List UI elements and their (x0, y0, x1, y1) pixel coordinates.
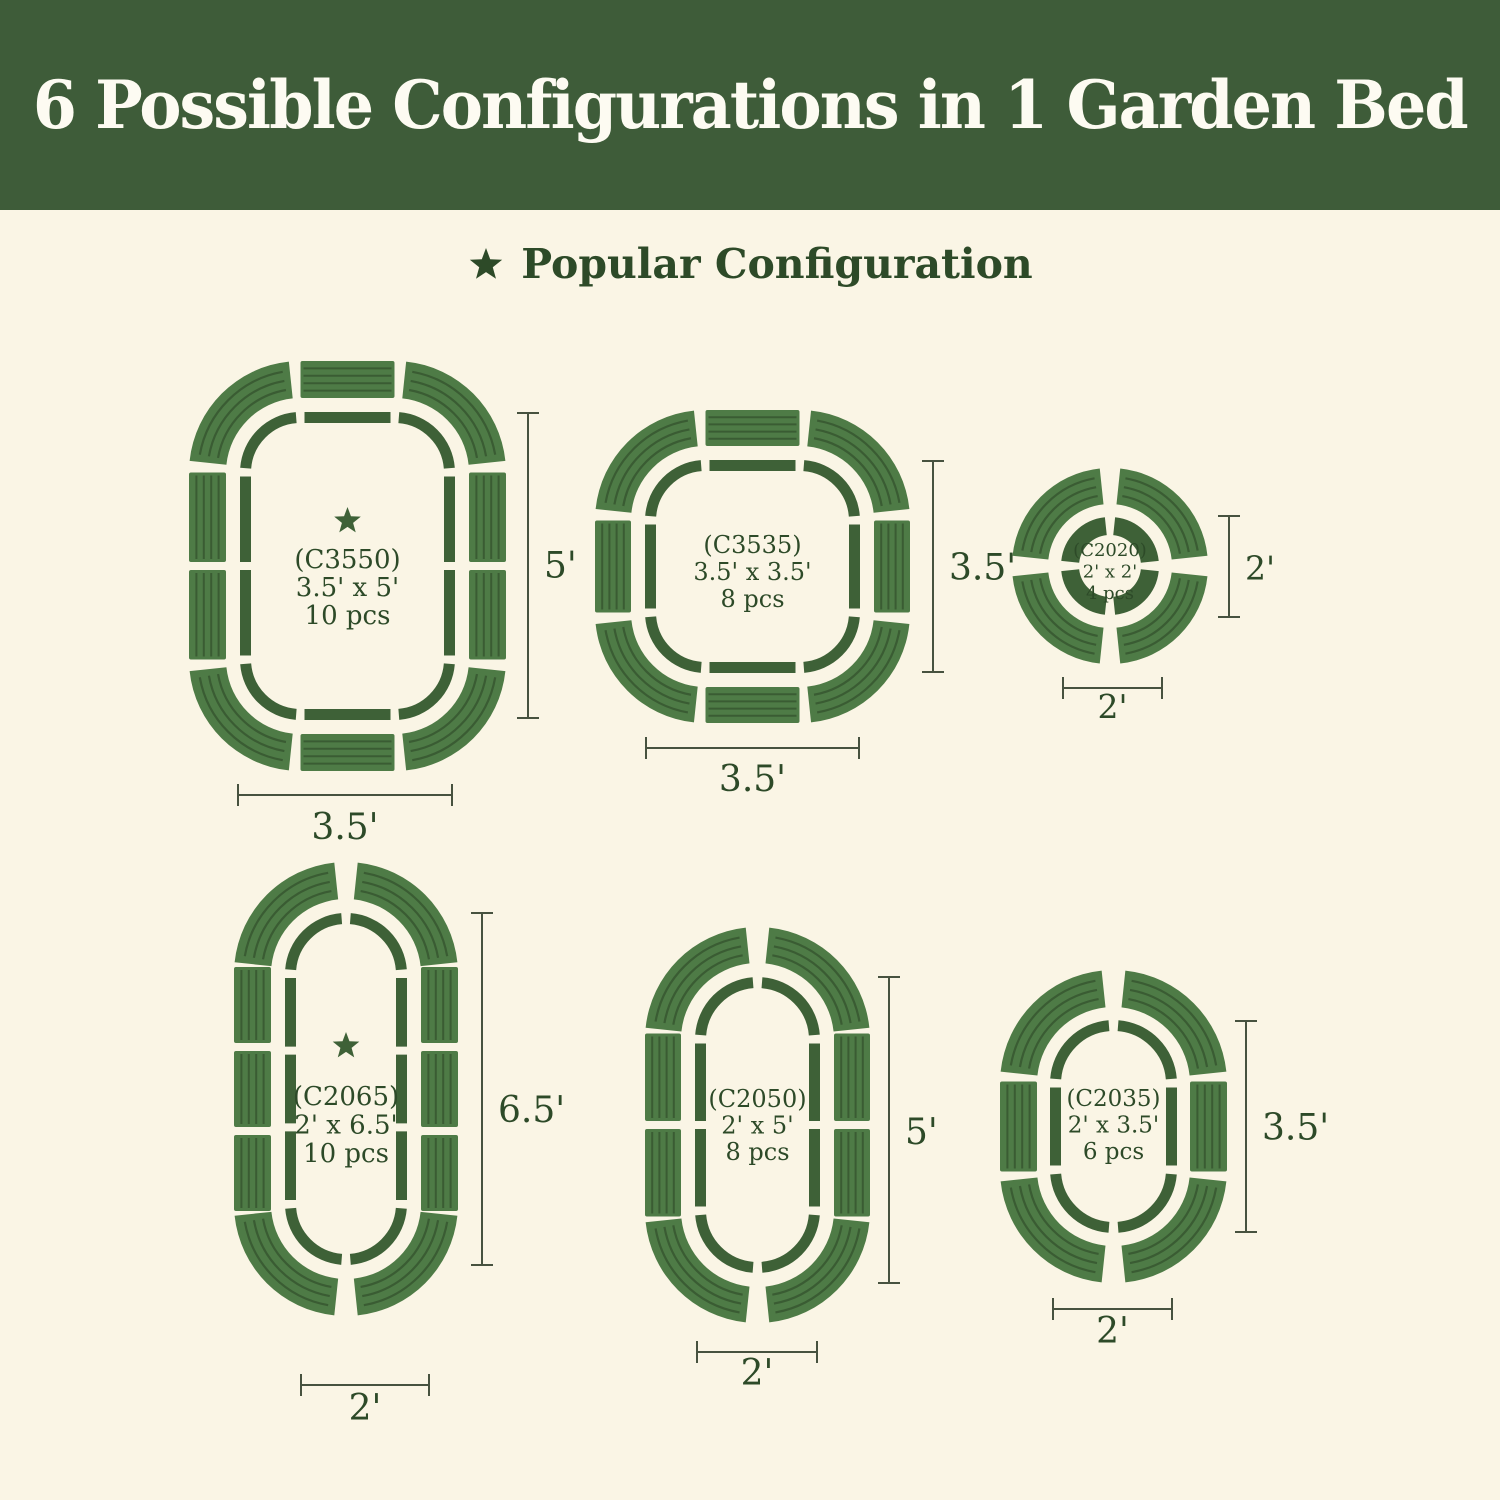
config-pieces: 10 pcs (303, 1139, 389, 1169)
config-pieces: 6 pcs (1083, 1139, 1144, 1165)
straight-panel (706, 687, 800, 723)
straight-panel (301, 734, 395, 771)
bed-track-segment (762, 983, 814, 1035)
bed-track-segment (350, 1208, 401, 1259)
config-size: 3.5' x 5' (296, 573, 399, 603)
config-pieces: 8 pcs (725, 1138, 789, 1166)
straight-panel (301, 361, 395, 398)
config-code: (C2065) (293, 1082, 399, 1112)
bed-track-segment (651, 617, 702, 668)
config-size: 2' x 5' (721, 1112, 794, 1140)
configurations-diagram: (C3550)3.5' x 5'10 pcs5'3.5'(C3535)3.5' … (0, 0, 1500, 1500)
popular-star-icon (334, 507, 361, 532)
legend-label: Popular Configuration (521, 240, 1032, 288)
config-code: (C2035) (1066, 1086, 1160, 1112)
dimension-height-label: 5' (544, 546, 577, 587)
straight-panel (234, 1135, 271, 1211)
bed-track-segment (762, 1215, 814, 1267)
config-c2050: (C2050)2' x 5'8 pcs5'2' (645, 928, 938, 1394)
bed-track-segment (804, 617, 855, 668)
dimension-height-label: 3.5' (1262, 1108, 1329, 1149)
config-c2020: (C2020)2' x 2'4 pcs2'2' (1013, 469, 1276, 726)
straight-panel (645, 1129, 681, 1217)
straight-panel (706, 410, 800, 446)
straight-panel (834, 1129, 870, 1217)
straight-panel (1000, 1082, 1037, 1172)
dimension-height-label: 5' (905, 1112, 938, 1153)
straight-panel (421, 1135, 458, 1211)
config-code: (C3535) (703, 531, 801, 559)
straight-panel (189, 570, 226, 660)
straight-panel (645, 1034, 681, 1122)
straight-panel (469, 473, 506, 563)
straight-panel (421, 967, 458, 1043)
bed-track-segment (291, 919, 342, 970)
dimension-height-label: 2' (1245, 549, 1275, 588)
straight-panel (234, 1051, 271, 1127)
bed-track-segment (399, 418, 450, 469)
bed-track-segment (399, 664, 450, 715)
config-code: (C2020) (1073, 540, 1147, 561)
bed-track-segment (1056, 1026, 1109, 1079)
dimension-width-label: 2' (1097, 687, 1127, 726)
bed-track-segment (291, 1208, 342, 1259)
straight-panel (469, 570, 506, 660)
straight-panel (234, 967, 271, 1043)
config-code: (C3550) (294, 545, 400, 575)
bed-track-segment (246, 664, 297, 715)
dimension-width-label: 2' (741, 1353, 774, 1394)
config-pieces: 8 pcs (720, 585, 784, 613)
straight-panel (874, 521, 910, 613)
straight-panel (834, 1034, 870, 1122)
bed-track-segment (1118, 1026, 1171, 1079)
config-size: 2' x 6.5' (294, 1111, 397, 1141)
straight-panel (421, 1051, 458, 1127)
straight-panel (1190, 1082, 1227, 1172)
config-pieces: 10 pcs (305, 601, 391, 631)
dimension-height-label: 3.5' (949, 548, 1016, 589)
config-size: 3.5' x 3.5' (693, 558, 811, 586)
star-icon-shape (470, 248, 502, 279)
config-pieces: 4 pcs (1086, 583, 1134, 604)
config-c2035: (C2035)2' x 3.5'6 pcs3.5'2' (1000, 971, 1329, 1352)
bed-track-segment (350, 919, 401, 970)
bed-track-segment (1118, 1174, 1171, 1227)
popular-star-icon (333, 1032, 360, 1057)
dimension-width-label: 2' (1096, 1311, 1129, 1352)
bed-track-segment (651, 466, 702, 517)
config-code: (C2050) (708, 1085, 806, 1113)
config-c3535: (C3535)3.5' x 3.5'8 pcs3.5'3.5' (595, 410, 1016, 800)
config-size: 2' x 2' (1083, 562, 1137, 583)
dimension-width-label: 2' (349, 1388, 382, 1429)
dimension-width-label: 3.5' (719, 759, 786, 800)
straight-panel (189, 473, 226, 563)
config-c3550: (C3550)3.5' x 5'10 pcs5'3.5' (189, 361, 577, 848)
straight-panel (595, 521, 631, 613)
bed-track-segment (246, 418, 297, 469)
infographic-canvas: 6 Possible Configurations in 1 Garden Be… (0, 0, 1500, 1500)
bed-track-segment (701, 983, 753, 1035)
bed-track-segment (1056, 1174, 1109, 1227)
popular-configuration-legend: Popular Configuration (0, 234, 1500, 294)
dimension-height-label: 6.5' (498, 1090, 565, 1131)
star-icon (467, 245, 505, 283)
config-size: 2' x 3.5' (1068, 1113, 1159, 1139)
bed-track-segment (804, 466, 855, 517)
bed-track-segment (701, 1215, 753, 1267)
dimension-width-label: 3.5' (311, 807, 378, 848)
config-c2065: (C2065)2' x 6.5'10 pcs6.5'2' (234, 863, 565, 1429)
